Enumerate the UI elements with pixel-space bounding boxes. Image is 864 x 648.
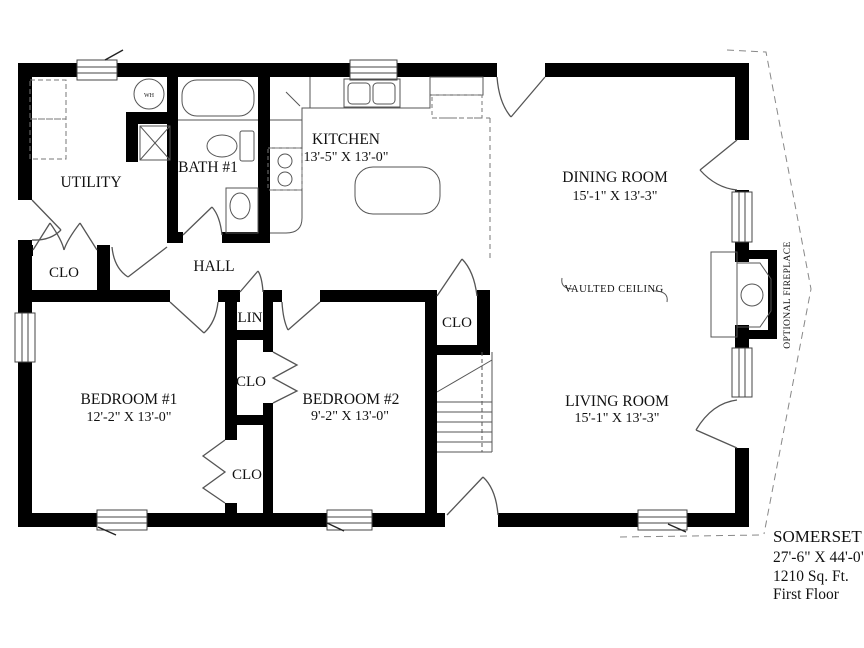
dining-right-door: [700, 140, 737, 190]
utility-hall-door: [112, 247, 167, 277]
bedroom2-bottom-window: [327, 510, 372, 530]
bathtub: [182, 80, 254, 116]
room-label-bedroom1: BEDROOM #1: [81, 391, 178, 408]
kitchen-sink: [344, 79, 400, 107]
dryer-dashed: [30, 119, 66, 159]
plan-floor: First Floor: [773, 586, 840, 603]
pantry-cabinet: [430, 77, 483, 95]
plan-model-name: SOMERSET II: [773, 527, 864, 546]
firebox: [737, 263, 771, 327]
living-right-window: [732, 348, 752, 397]
living-bottom-door: [447, 477, 498, 515]
living-right-door: [696, 400, 737, 448]
range-cooktop: [268, 148, 302, 190]
room-label-bedroom2: BEDROOM #2: [303, 391, 400, 408]
stairs: [437, 352, 492, 452]
plan-overall-dimensions: 27'-6" X 44'-0": [773, 549, 864, 566]
hearth: [711, 252, 737, 337]
room-dims-kitchen: 13'-5" X 13'-0": [304, 150, 389, 165]
living-bottom-window: [638, 510, 687, 530]
bath-door: [183, 207, 222, 235]
bath-fixtures: [178, 80, 258, 233]
closet-label-stairs: CLO: [442, 315, 472, 331]
room-label-dining: DINING ROOM: [562, 169, 668, 186]
kitchen-dining-divider: [432, 118, 490, 262]
room-label-utility: UTILITY: [60, 174, 121, 191]
optional-fireplace-label: OPTIONAL FIREPLACE: [783, 241, 793, 348]
bedroom2-closet-bifold: [273, 352, 297, 403]
vaulted-ceiling-label: VAULTED CEILING: [564, 284, 663, 295]
bedroom1-left-window: [15, 313, 35, 362]
room-label-hall: HALL: [193, 258, 234, 275]
dining-right-window: [732, 192, 752, 242]
hall-closet-double-doors: [33, 223, 97, 250]
bedroom1-closet-bifold: [203, 440, 225, 503]
floor-plan-page: UTILITY BATH #1 KITCHEN 13'-5" X 13'-0" …: [0, 0, 864, 648]
room-dims-bedroom2: 9'-2" X 13'-0": [311, 409, 389, 424]
bedroom2-door: [282, 302, 320, 330]
plan-area: 1210 Sq. Ft.: [773, 568, 849, 585]
refrigerator-dashed: [432, 95, 482, 118]
washer-dashed: [30, 80, 66, 119]
linen-door: [240, 271, 263, 292]
floor-plan-canvas: UTILITY BATH #1 KITCHEN 13'-5" X 13'-0" …: [0, 0, 864, 648]
stair-closet-door: [437, 259, 477, 296]
room-dims-dining: 15'-1" X 13'-3": [573, 189, 658, 204]
title-block: SOMERSET II 27'-6" X 44'-0" 1210 Sq. Ft.…: [773, 527, 864, 603]
closet-label-bed2: CLO: [236, 374, 266, 390]
bedroom1-bottom-window: [97, 510, 147, 530]
bath-vanity-sink: [226, 188, 258, 233]
kitchen-island: [355, 167, 440, 214]
kitchen-fixtures: [268, 77, 490, 262]
room-label-living: LIVING ROOM: [565, 393, 669, 410]
utility-window: [77, 60, 117, 80]
room-label-kitchen: KITCHEN: [312, 131, 380, 148]
closet-label-bed1: CLO: [232, 467, 262, 483]
room-dims-living: 15'-1" X 13'-3": [575, 411, 660, 426]
room-dims-bedroom1: 12'-2" X 13'-0": [87, 410, 172, 425]
furnace: [140, 126, 170, 160]
linen-label: LIN: [238, 310, 263, 326]
room-label-bath1: BATH #1: [178, 159, 238, 176]
bedroom1-door: [170, 302, 218, 333]
closet-label-hall: CLO: [49, 265, 79, 281]
water-heater-label: WH: [144, 93, 155, 99]
toilet: [207, 131, 254, 161]
kitchen-window: [350, 60, 397, 80]
dining-entry-door: [497, 77, 545, 117]
title-leader-line: [620, 535, 762, 537]
